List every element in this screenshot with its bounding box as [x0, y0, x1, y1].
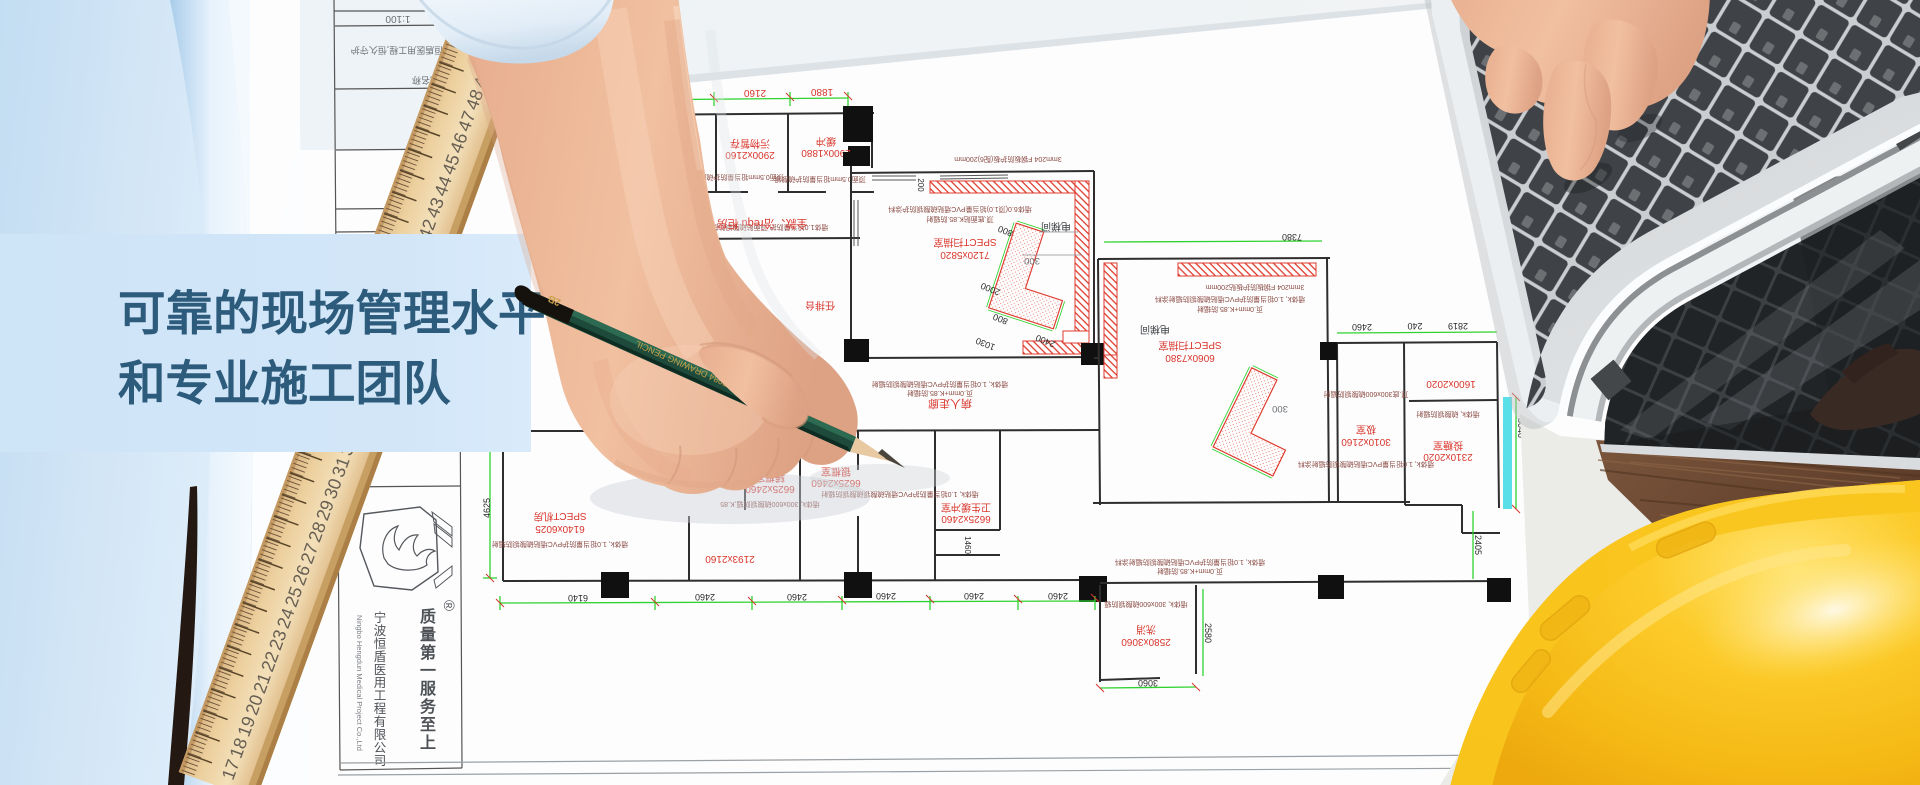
svg-text:洗消: 洗消	[1136, 623, 1156, 636]
svg-text:2160: 2160	[743, 87, 766, 98]
svg-text:SPECT机房: SPECT机房	[533, 510, 586, 523]
svg-text:墙体k, 1.0铅当量防护PVC墙贴硫酸钡防辐射: 墙体k, 1.0铅当量防护PVC墙贴硫酸钡防辐射	[872, 380, 1009, 389]
svg-text:墙体k, 硫酸钡防辐射: 墙体k, 硫酸钡防辐射	[1416, 410, 1479, 419]
svg-text:2405: 2405	[1473, 535, 1483, 555]
svg-text:300: 300	[1272, 403, 1288, 414]
svg-text:投糖室: 投糖室	[1433, 439, 1463, 452]
svg-text:墙体k, 1.0铅当量防护PVC墙贴硫酸钡防辐射涂料: 墙体k, 1.0铅当量防护PVC墙贴硫酸钡防辐射涂料	[1155, 295, 1306, 304]
svg-text:3010x2160: 3010x2160	[1341, 436, 1391, 447]
svg-text:2193x2160: 2193x2160	[705, 553, 755, 564]
svg-text:200: 200	[916, 178, 925, 192]
svg-text:7380: 7380	[1282, 232, 1302, 242]
svg-text:可靠的现场管理水平: 可靠的现场管理水平	[118, 288, 546, 341]
svg-text:2819: 2819	[1448, 321, 1468, 331]
svg-text:页.0mm+K.85.防辐射: 页.0mm+K.85.防辐射	[1197, 305, 1263, 314]
svg-text:质量第一服务至上: 质量第一服务至上	[420, 607, 437, 752]
svg-text:Ningbo Hengdun Medical Project: Ningbo Hengdun Medical Project Co.,Ltd	[355, 615, 364, 751]
svg-text:2460: 2460	[1352, 322, 1372, 332]
svg-text:2460: 2460	[876, 591, 896, 601]
svg-text:和专业施工团队: 和专业施工团队	[118, 358, 451, 411]
svg-text:2460: 2460	[964, 591, 984, 601]
svg-text:宁波恒盾医用工程有限公司: 宁波恒盾医用工程有限公司	[374, 610, 387, 768]
svg-text:病人走廊: 病人走廊	[928, 397, 972, 411]
svg-text:SPECT扫描室: SPECT扫描室	[1158, 339, 1221, 352]
svg-text:4625: 4625	[482, 498, 492, 518]
svg-text:7120x5820: 7120x5820	[940, 249, 990, 260]
svg-text:1460: 1460	[963, 536, 972, 554]
svg-text:2580: 2580	[1203, 623, 1213, 643]
svg-text:240: 240	[1407, 321, 1422, 331]
svg-text:SPECT扫描室: SPECT扫描室	[933, 236, 996, 249]
svg-text:墙体k, 1.0铅当量防护PVC墙贴硫酸钡防辐射涂料: 墙体k, 1.0铅当量防护PVC墙贴硫酸钡防辐射涂料	[1115, 558, 1266, 567]
svg-text:3060: 3060	[1138, 678, 1158, 688]
svg-text:电梯间: 电梯间	[1041, 220, 1071, 233]
svg-text:1:100: 1:100	[385, 13, 410, 24]
svg-text:全款、洽requ 柜房: 全款、洽requ 柜房	[716, 217, 807, 231]
svg-text:2460: 2460	[787, 592, 807, 602]
svg-text:顶.底面贴K.85.防辐射: 顶.底面贴K.85.防辐射	[926, 215, 993, 224]
svg-text:1600x2020: 1600x2020	[1426, 378, 1476, 389]
svg-text:3mm204 F钢板防护板贴200mm: 3mm204 F钢板防护板贴200mm	[1205, 283, 1304, 292]
svg-text:任排台: 任排台	[805, 299, 835, 312]
svg-text:电梯间: 电梯间	[1140, 323, 1170, 336]
svg-text:页.0mm+K.85.防辐射: 页.0mm+K.85.防辐射	[1157, 567, 1223, 576]
svg-text:墙体k, 1.0铅当量防护PVC墙贴硫酸钡防辐射: 墙体k, 1.0铅当量防护PVC墙贴硫酸钡防辐射	[492, 540, 629, 549]
svg-text:2460: 2460	[695, 592, 715, 602]
svg-text:墙体k, 1.0铅当量PVC墙贴硫酸钡防辐射涂料: 墙体k, 1.0铅当量PVC墙贴硫酸钡防辐射涂料	[1298, 460, 1435, 469]
svg-text:6625x2460: 6625x2460	[941, 513, 991, 524]
svg-text:卫生缓冲室: 卫生缓冲室	[941, 501, 991, 514]
svg-text:缓冲: 缓冲	[816, 135, 836, 148]
svg-text:3mm204 F钢板防护板(配6)200mm: 3mm204 F钢板防护板(配6)200mm	[954, 155, 1062, 164]
svg-text:污物暂存: 污物暂存	[730, 137, 770, 150]
svg-text:墙体k, 300x600硫酸钡防辐: 墙体k, 300x600硫酸钡防辐	[1104, 600, 1187, 609]
svg-text:®: ®	[440, 600, 457, 611]
svg-text:页.0mm+K.85.防辐射: 页.0mm+K.85.防辐射	[907, 389, 973, 398]
svg-text:极室: 极室	[1356, 423, 1376, 436]
svg-text:6140: 6140	[568, 593, 588, 603]
svg-text:2580x3060: 2580x3060	[1121, 636, 1171, 647]
svg-text:2460: 2460	[1048, 591, 1068, 601]
svg-text:顶.底300x600硫酸钡防辐射: 顶.底300x600硫酸钡防辐射	[1324, 390, 1409, 399]
svg-text:6060x7380: 6060x7380	[1165, 352, 1215, 363]
svg-text:300: 300	[1024, 255, 1040, 266]
svg-text:1880: 1880	[810, 86, 833, 97]
svg-text:恒盾医用工程,恒久守护: 恒盾医用工程,恒久守护	[351, 45, 444, 56]
svg-text:墙体6.0(顶1.0)铅当量PVC墙贴硫酸钡防护涂料: 墙体6.0(顶1.0)铅当量PVC墙贴硫酸钡防护涂料	[888, 205, 1032, 214]
svg-text:6140x6025: 6140x6025	[535, 523, 585, 534]
